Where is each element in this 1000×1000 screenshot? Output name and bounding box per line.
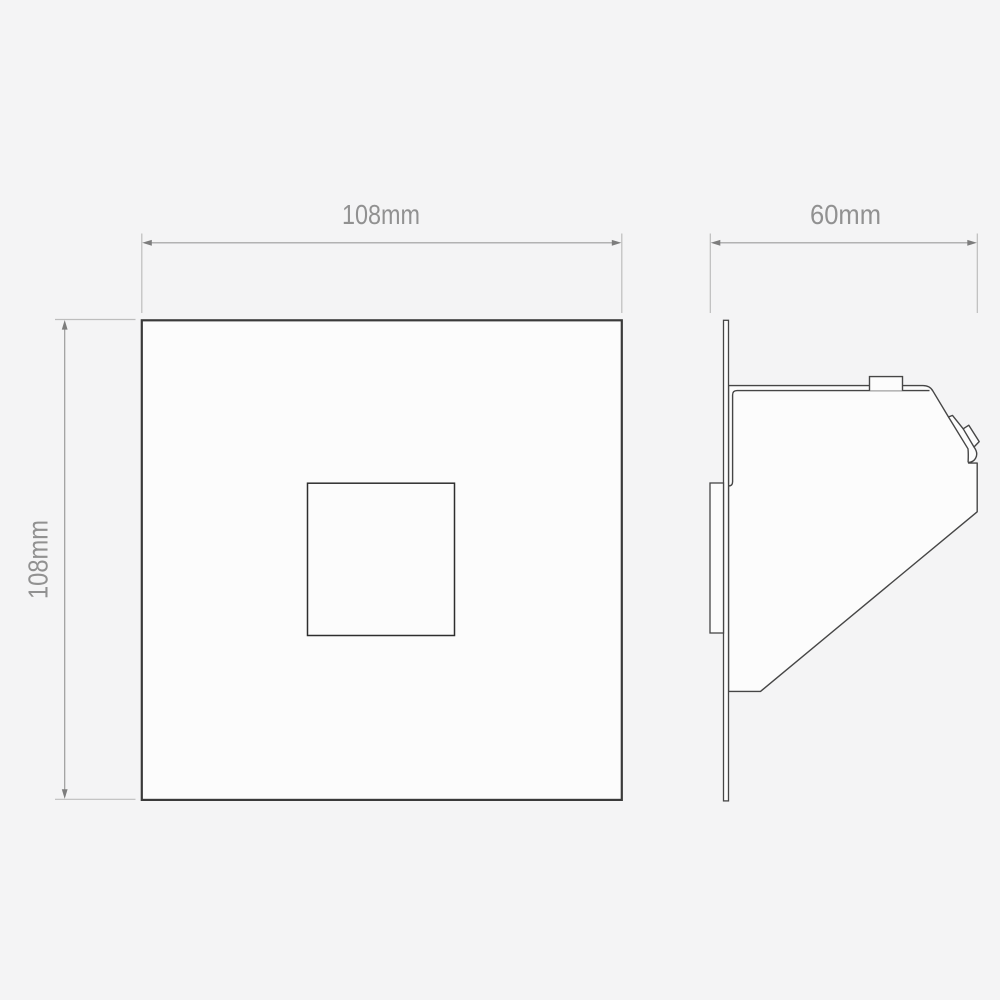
svg-text:108mm: 108mm (342, 199, 420, 230)
svg-text:108mm: 108mm (23, 520, 54, 599)
svg-text:60mm: 60mm (810, 199, 881, 230)
